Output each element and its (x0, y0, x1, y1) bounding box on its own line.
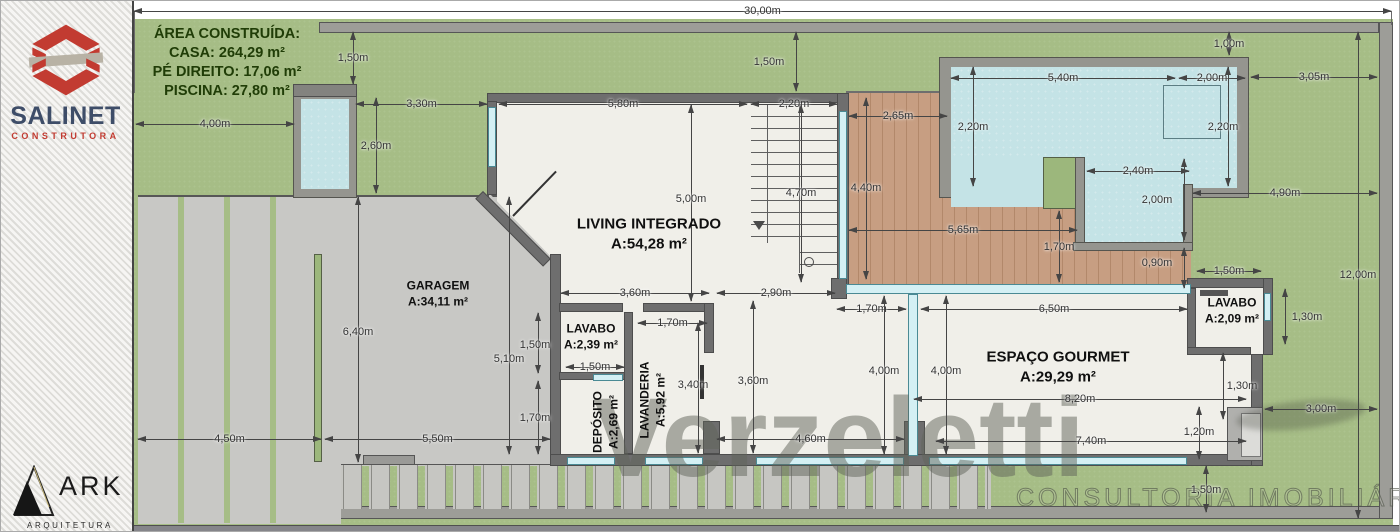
dimension-label: 3,60m (738, 375, 769, 387)
dimension-label: 1,50m (1191, 484, 1222, 496)
room-label: LAVABOA:2,09 m² (1205, 295, 1259, 326)
dimension-label: 2,20m (779, 98, 810, 110)
room-label: GARAGEMA:34,11 m² (407, 278, 470, 309)
dimension-label: 3,60m (620, 287, 651, 299)
dimension-label: 30,00m (744, 5, 781, 17)
dimension-line (1184, 248, 1185, 288)
dimension-line (509, 197, 510, 454)
room-label: LAVABOA:2,39 m² (564, 321, 618, 352)
dimension-label: 4,60m (795, 433, 826, 445)
dimension-label: 3,00m (1306, 403, 1337, 415)
dimension-label: 3,30m (406, 98, 437, 110)
dimension-label: 5,65m (948, 224, 979, 236)
dimension-label: 5,10m (494, 353, 525, 365)
dimension-label: 1,00m (1214, 38, 1245, 50)
dimension-label: 1,50m (1214, 265, 1245, 277)
dimension-label: 8,20m (1065, 393, 1096, 405)
dimension-label: 4,90m (1270, 187, 1301, 199)
dimension-label: 5,50m (422, 433, 453, 445)
dimension-label: 1,70m (657, 317, 688, 329)
dimension-label: 6,40m (343, 326, 374, 338)
dimension-label: 0,90m (1142, 257, 1173, 269)
dimension-label: 4,40m (851, 182, 882, 194)
dimension-label: 2,00m (1197, 72, 1228, 84)
dimension-label: 5,00m (676, 193, 707, 205)
dimension-label: 2,20m (1208, 121, 1239, 133)
room-label: DEPÓSITOA:2,69 m² (590, 391, 621, 453)
dimension-label: 2,60m (361, 140, 392, 152)
room-label: LIVING INTEGRADOA:54,28 m² (577, 215, 721, 254)
dimension-label: 12,00m (1340, 269, 1377, 281)
dimension-label: 1,70m (1044, 241, 1075, 253)
dimension-line (796, 32, 797, 91)
dimension-label: 1,20m (1184, 426, 1215, 438)
dimension-layer: 30,00m4,00m3,30m5,80m2,20m2,65m5,40m2,00… (1, 1, 1400, 532)
dimension-label: 6,50m (1039, 303, 1070, 315)
dimension-label: 4,70m (786, 187, 817, 199)
dimension-label: 2,20m (958, 121, 989, 133)
dimension-label: 1,50m (580, 361, 611, 373)
dimension-label: 1,50m (520, 339, 551, 351)
dimension-line (1223, 353, 1224, 419)
dimension-label: 1,30m (1227, 380, 1258, 392)
dimension-label: 2,00m (1142, 194, 1173, 206)
dimension-label: 7,40m (1076, 435, 1107, 447)
dimension-label: 2,40m (1123, 165, 1154, 177)
room-label: LAVANDERIAA:5,92 m² (637, 362, 668, 439)
dimension-label: 5,80m (608, 98, 639, 110)
dimension-label: 3,40m (678, 379, 709, 391)
dimension-label: 2,90m (761, 287, 792, 299)
dimension-label: 4,50m (214, 433, 245, 445)
dimension-label: 2,65m (883, 110, 914, 122)
dimension-line (1184, 159, 1185, 240)
dimension-label: 1,30m (1292, 311, 1323, 323)
dimension-line (1285, 289, 1286, 344)
dimension-label: 4,00m (869, 365, 900, 377)
dimension-label: 4,00m (200, 118, 231, 130)
dimension-label: 5,40m (1048, 72, 1079, 84)
dimension-label: 4,00m (931, 365, 962, 377)
room-label: ESPAÇO GOURMETA:29,29 m² (986, 348, 1129, 387)
dimension-label: 1,50m (754, 56, 785, 68)
dimension-label: 1,70m (856, 303, 887, 315)
floor-plan: Verzeletti CONSULTORIA IMOBILIÁRIA SALIN… (0, 0, 1400, 532)
dimension-label: 1,50m (338, 52, 369, 64)
dimension-label: 1,70m (520, 412, 551, 424)
dimension-label: 3,05m (1299, 71, 1330, 83)
